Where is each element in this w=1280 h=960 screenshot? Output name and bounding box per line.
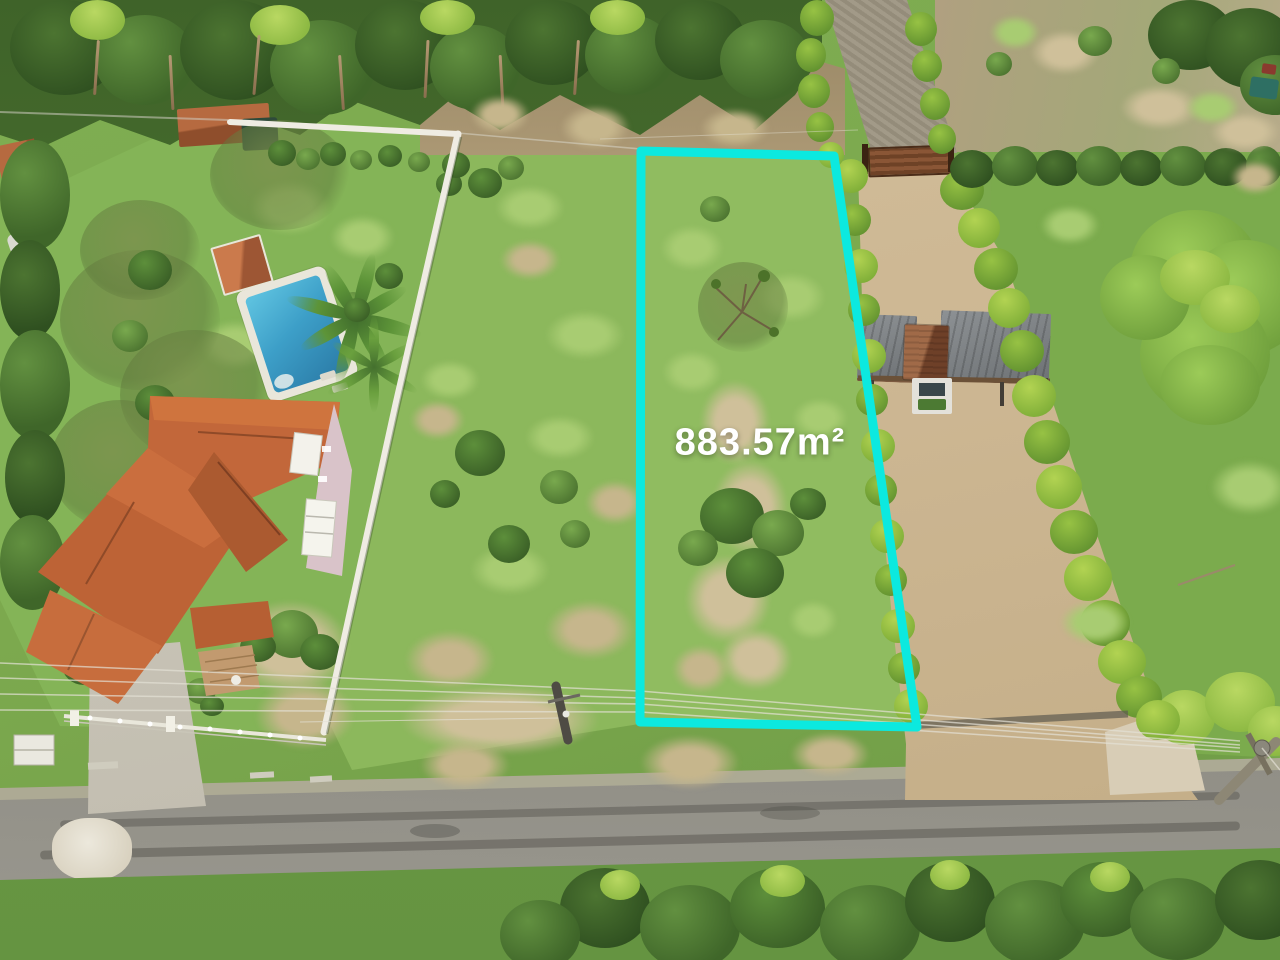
- garden-bush: [112, 320, 148, 352]
- hedge-bush: [800, 0, 834, 36]
- hedge-bush: [912, 50, 942, 82]
- hedge-row: [378, 145, 402, 167]
- hedge-bush: [875, 564, 907, 596]
- ground-patch: [560, 105, 630, 150]
- hedge-bush: [958, 208, 1000, 248]
- hedge-bush: [865, 474, 897, 506]
- aerial-photo: 883.57m²: [0, 0, 1280, 960]
- field-bush: [468, 168, 502, 198]
- lot-bush: [678, 530, 718, 566]
- grass-patch: [1040, 205, 1100, 245]
- garden-bush: [135, 385, 175, 421]
- hedge-bush: [920, 88, 950, 120]
- field-bush: [560, 520, 590, 548]
- hedge-bush: [1012, 375, 1056, 417]
- hedge-bush: [852, 339, 886, 373]
- field-bush: [430, 480, 460, 508]
- water-barrel: [88, 572, 101, 585]
- hedge-bush: [905, 12, 937, 46]
- hedge-bush: [1000, 330, 1044, 372]
- hedge-bush: [848, 294, 880, 326]
- hedge-top: [1076, 146, 1122, 186]
- tree-canopy-highlight: [70, 0, 125, 40]
- grass-patch: [1185, 90, 1240, 125]
- hedge-bush: [861, 429, 895, 463]
- sand-pile: [52, 818, 132, 880]
- tree-canopy: [0, 515, 65, 610]
- grass-patch: [990, 15, 1040, 50]
- grass-patch: [788, 600, 838, 640]
- field-bush: [498, 156, 524, 180]
- hedge-row: [350, 150, 372, 170]
- bush-highlight: [930, 860, 970, 890]
- field-bush: [540, 470, 578, 504]
- hedge-bush: [856, 384, 888, 416]
- road-stain: [760, 806, 820, 820]
- small-tree: [1078, 26, 1112, 56]
- hedge-bush: [1024, 420, 1070, 464]
- curb-stone: [250, 771, 274, 778]
- bush-highlight: [760, 865, 805, 897]
- grass-patch: [545, 600, 635, 660]
- tree-canopy: [505, 0, 600, 85]
- hedge-bush: [796, 38, 826, 72]
- road-stain: [410, 824, 460, 838]
- bush-highlight: [600, 870, 640, 900]
- ground-patch: [700, 108, 770, 148]
- hedge-bush: [894, 689, 928, 723]
- tree-canopy: [0, 330, 70, 440]
- dirt-streak: [720, 628, 792, 690]
- grass-patch: [585, 480, 645, 525]
- grass-patch: [1230, 160, 1280, 195]
- shed-tarp: [1249, 76, 1280, 100]
- hedge-row: [320, 142, 346, 166]
- dirt-patch: [400, 685, 600, 755]
- roadside-patch: [790, 732, 870, 777]
- bare-tree-foliage: [698, 262, 788, 352]
- field-bush: [455, 430, 505, 476]
- hedge-bush: [928, 124, 956, 154]
- garden-bush: [128, 250, 172, 290]
- field-bush: [442, 152, 470, 178]
- curb-stone: [310, 775, 332, 782]
- hedge-bush: [1036, 465, 1082, 509]
- grass-patch: [495, 185, 565, 230]
- topiary: [375, 263, 403, 289]
- lot-bush: [700, 196, 730, 222]
- hedge-top: [992, 146, 1038, 186]
- hedge-row: [268, 140, 296, 166]
- hedge-bush: [844, 249, 878, 283]
- grass-patch: [330, 215, 395, 260]
- grass-patch: [1210, 460, 1280, 515]
- grass-patch: [405, 630, 495, 690]
- tree-canopy-highlight: [420, 0, 475, 35]
- grass-patch: [420, 360, 480, 400]
- tree-canopy: [0, 140, 70, 250]
- hedge-row: [408, 152, 430, 172]
- hedge-top: [1120, 150, 1162, 186]
- small-tree: [986, 52, 1012, 76]
- gatehouse-window: [919, 383, 945, 396]
- hedge-bush: [881, 609, 915, 643]
- hedge-bush: [1050, 510, 1098, 554]
- field-bush: [488, 525, 530, 563]
- hedge-top: [950, 150, 994, 188]
- carport-post: [1000, 382, 1004, 406]
- grass-patch: [500, 240, 560, 280]
- roof-fragment: [1261, 63, 1276, 75]
- hedge-bush: [818, 142, 844, 168]
- hedge-bush: [798, 74, 830, 108]
- grass-patch: [662, 350, 722, 394]
- dirt-patch: [255, 680, 355, 750]
- tree-canopy-highlight: [590, 0, 645, 35]
- large-tree-highlight: [1200, 285, 1260, 333]
- lot-bush: [726, 548, 784, 598]
- hedge-top: [1036, 150, 1078, 186]
- grass-patch: [1060, 600, 1130, 645]
- hedge-bush: [974, 248, 1018, 290]
- gatehouse-roof: [903, 324, 949, 381]
- roadside-patch: [420, 740, 510, 790]
- bush-highlight: [1090, 862, 1130, 892]
- hedge-bush: [988, 288, 1030, 328]
- overhanging-tree: [50, 400, 190, 530]
- hedge-bush: [1064, 555, 1112, 601]
- hedge-bush: [888, 652, 920, 684]
- water-barrel: [78, 556, 94, 572]
- hedge-bush: [839, 204, 871, 236]
- garden-bush: [300, 634, 340, 670]
- ground-patch: [470, 95, 530, 135]
- small-tree: [1152, 58, 1180, 84]
- roadside-patch: [640, 735, 740, 790]
- hedge-top: [1160, 146, 1206, 186]
- tree-canopy: [5, 430, 65, 525]
- bush: [640, 885, 740, 960]
- hedge-bush: [870, 519, 904, 553]
- hedge-bush: [806, 112, 834, 142]
- hedge-bush: [1136, 700, 1180, 740]
- palm-crown: [344, 298, 370, 322]
- lot-area-label: 883.57m²: [675, 422, 846, 465]
- tree-canopy: [0, 240, 60, 340]
- grass-patch: [660, 225, 724, 271]
- grass-patch: [410, 400, 465, 440]
- grass-patch: [545, 310, 625, 360]
- lot-bush: [790, 488, 826, 520]
- garden-bush: [200, 696, 224, 716]
- gatehouse-planter: [918, 399, 946, 410]
- garden-bush: [240, 632, 276, 662]
- palm-frond: [369, 367, 379, 413]
- large-tree: [1160, 345, 1260, 425]
- bush: [1130, 878, 1225, 960]
- dirt-streak: [672, 645, 730, 693]
- overhanging-tree: [210, 120, 350, 230]
- hedge-row: [296, 148, 320, 170]
- grass-patch: [525, 415, 595, 460]
